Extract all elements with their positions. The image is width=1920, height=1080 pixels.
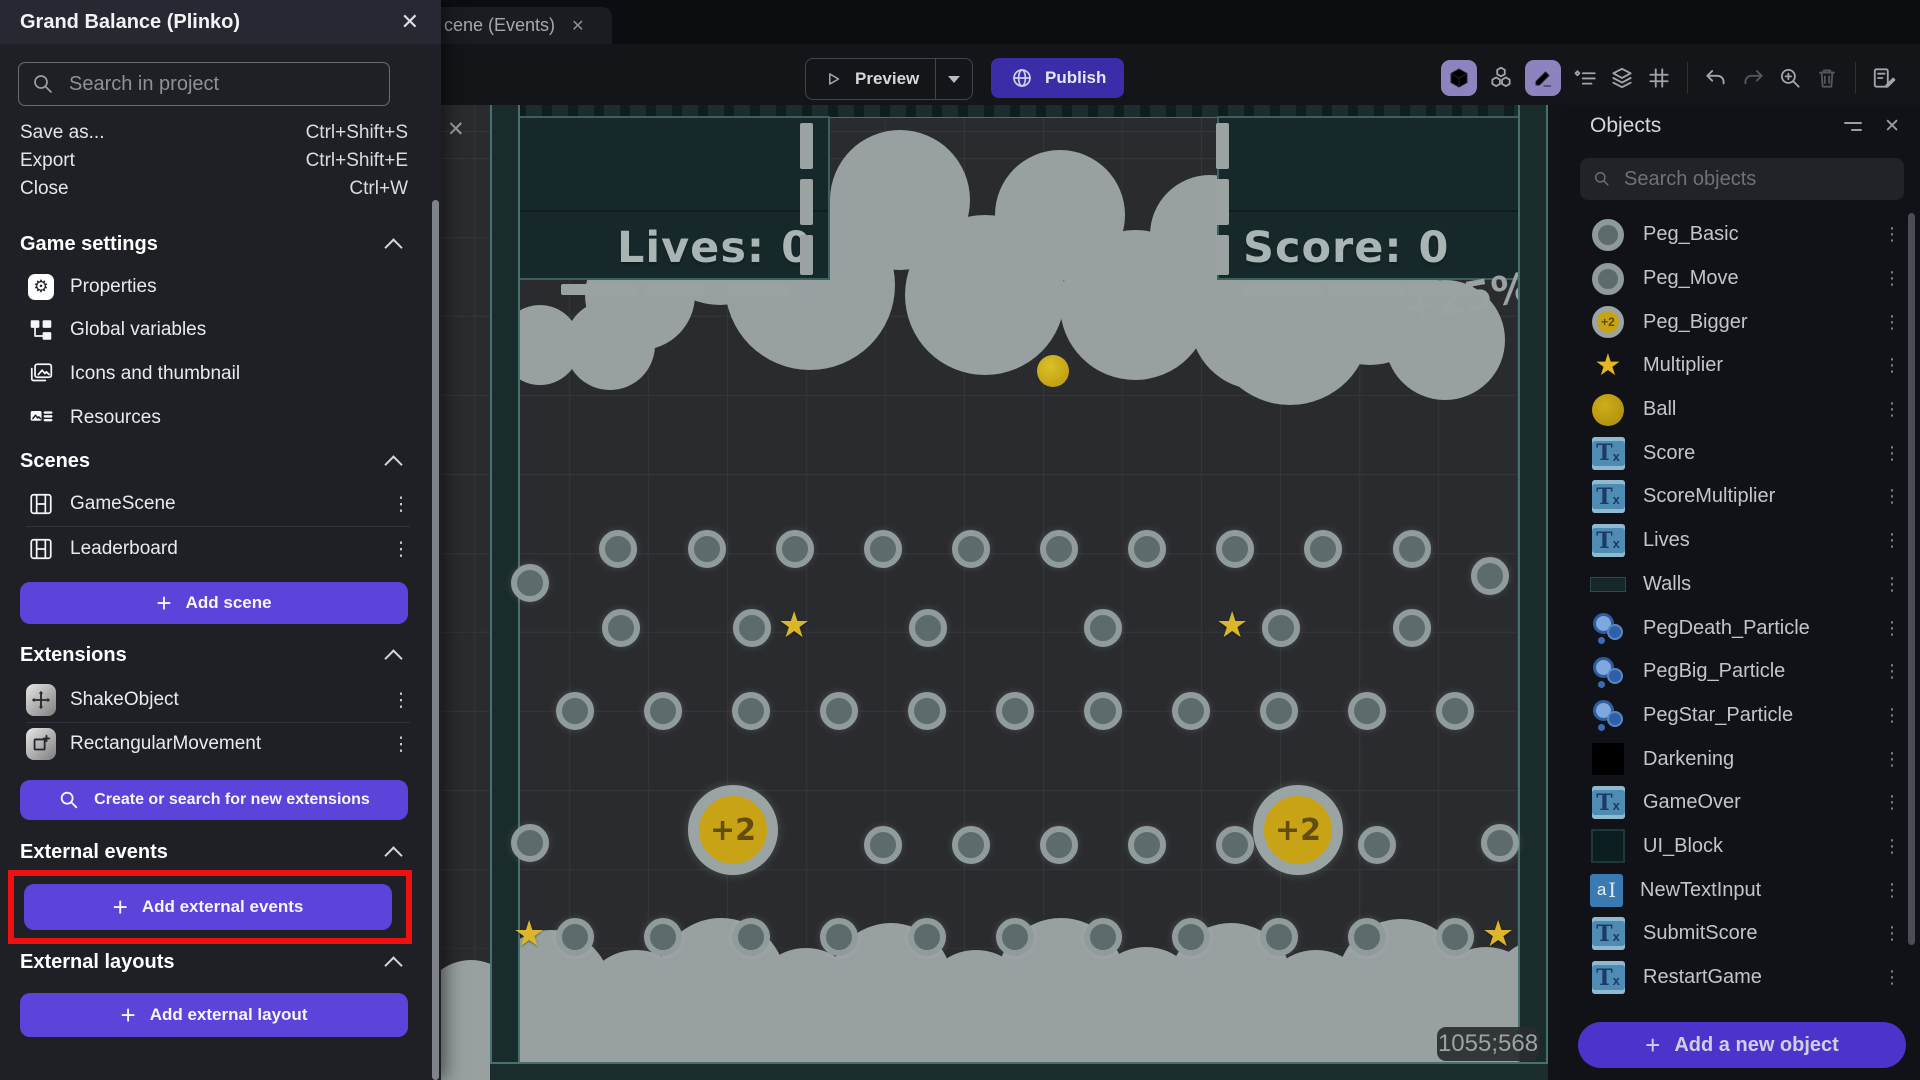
project-title: Grand Balance (Plinko) [20, 11, 401, 34]
particle-icon [1590, 697, 1626, 733]
objects-panel-title: Objects [1590, 114, 1661, 138]
extension-menu-icon[interactable]: ⋮ [391, 689, 411, 712]
peg-instance[interactable] [1393, 609, 1431, 647]
peg-instance[interactable] [1393, 530, 1431, 568]
peg-instance[interactable] [952, 530, 990, 568]
peg-icon [1590, 261, 1626, 297]
section-scenes[interactable]: Scenes [20, 449, 408, 473]
scene-item-gamescene[interactable]: GameScene ⋮ [0, 482, 441, 526]
peg-instance[interactable] [1436, 918, 1474, 956]
scene-canvas[interactable]: Lives: 0 Score: 0 +25% 1055;568 ✕ ★★★★+2… [441, 105, 1563, 1080]
peg-instance[interactable] [644, 692, 682, 730]
section-extensions[interactable]: Extensions [20, 643, 408, 667]
peg-instance[interactable] [1358, 826, 1396, 864]
multiplier-star-instance[interactable]: ★ [513, 917, 545, 953]
coin-label: +2 [710, 813, 756, 848]
objects-panel-close-icon[interactable]: ✕ [1884, 115, 1900, 138]
objects-panel: Objects ✕ Peg_Basic⋮Peg_Move⋮+2Peg_Bigge… [1563, 105, 1920, 1080]
scene-menu-icon[interactable]: ⋮ [391, 493, 411, 516]
dash-segment [800, 179, 813, 225]
text-icon: Tx [1592, 524, 1625, 557]
text-icon: Tx [1592, 786, 1625, 819]
section-external-layouts[interactable]: External layouts [20, 950, 408, 974]
publish-button[interactable]: Publish [991, 58, 1124, 98]
object-menu-icon[interactable]: ⋮ [1882, 792, 1902, 813]
dash-segment [800, 123, 813, 169]
chevron-up-icon [384, 846, 402, 864]
dash-segment [1243, 284, 1323, 295]
search-icon [31, 72, 55, 96]
object-menu-icon[interactable]: ⋮ [1882, 486, 1902, 507]
dash-segment [1216, 179, 1229, 225]
lives-text: Lives: 0 [617, 223, 812, 273]
peg-instance[interactable] [909, 609, 947, 647]
dark-icon [1590, 741, 1626, 777]
redo-icon[interactable] [1740, 65, 1766, 91]
add-scene-button[interactable]: + Add scene [20, 582, 408, 624]
object-item-Peg_Bigger[interactable]: +2Peg_Bigger⋮ [1563, 300, 1912, 344]
item-global-variables[interactable]: Global variables [0, 308, 441, 352]
panel-close-icon[interactable]: ✕ [447, 117, 465, 142]
tab-label: cene (Events) [444, 15, 555, 36]
uiblock-icon [1590, 828, 1626, 864]
peg-instance[interactable] [644, 918, 682, 956]
object-item-GameOver[interactable]: TxGameOver⋮ [1563, 781, 1912, 825]
object-label: PegStar_Particle [1643, 704, 1882, 727]
rectangle-plus-icon [26, 729, 56, 759]
item-resources[interactable]: Resources [0, 396, 441, 440]
peg-icon [1590, 217, 1626, 253]
peg-instance[interactable] [1172, 918, 1210, 956]
peg-instance[interactable] [1216, 530, 1254, 568]
grid-icon[interactable] [1646, 65, 1672, 91]
object-item-Ball[interactable]: Ball⋮ [1563, 388, 1912, 432]
extension-menu-icon[interactable]: ⋮ [391, 733, 411, 756]
peg-instance[interactable] [1348, 692, 1386, 730]
divider [1855, 62, 1856, 94]
object-menu-icon[interactable]: ⋮ [1882, 705, 1902, 726]
extension-item-shakeobject[interactable]: ShakeObject ⋮ [0, 678, 441, 722]
object-item-PegStar_Particle[interactable]: PegStar_Particle⋮ [1563, 694, 1912, 738]
search-icon [1592, 168, 1612, 190]
divider [1687, 62, 1688, 94]
add-new-object-label: Add a new object [1674, 1034, 1838, 1057]
object-menu-icon[interactable]: ⋮ [1882, 618, 1902, 639]
peg-instance[interactable] [1348, 918, 1386, 956]
ball-icon [1590, 392, 1626, 428]
add-new-object-button[interactable]: + Add a new object [1578, 1022, 1906, 1068]
film-icon [26, 534, 56, 564]
move-arrows-icon [26, 685, 56, 715]
scene-item-leaderboard[interactable]: Leaderboard ⋮ [0, 527, 441, 571]
dash-segment [1216, 235, 1229, 275]
peg-instance[interactable] [1128, 826, 1166, 864]
peg-instance[interactable] [602, 609, 640, 647]
extension-item-rectangularmovement[interactable]: RectangularMovement ⋮ [0, 722, 441, 766]
object-menu-icon[interactable]: ⋮ [1882, 224, 1902, 245]
object-label: Multiplier [1643, 354, 1882, 377]
object-label: UI_Block [1643, 835, 1882, 858]
search-extensions-button[interactable]: Create or search for new extensions [20, 780, 408, 820]
object-item-ScoreMultiplier[interactable]: TxScoreMultiplier⋮ [1563, 475, 1912, 519]
preview-dropdown[interactable] [936, 59, 972, 99]
object-label: Ball [1643, 398, 1882, 421]
object-menu-icon[interactable]: ⋮ [1882, 355, 1902, 376]
object-label: Peg_Move [1643, 267, 1882, 290]
instances-list-icon[interactable] [1572, 65, 1598, 91]
peg-instance[interactable] [732, 692, 770, 730]
project-search-input[interactable] [67, 72, 377, 97]
scene-menu-icon[interactable]: ⋮ [391, 538, 411, 561]
undo-icon[interactable] [1703, 65, 1729, 91]
peg-instance[interactable] [1040, 826, 1078, 864]
object-label: Lives [1643, 529, 1882, 552]
object-item-Walls[interactable]: Walls⋮ [1563, 563, 1912, 607]
peg-big-icon: +2 [1590, 304, 1626, 340]
peg-instance[interactable] [599, 530, 637, 568]
peg-instance[interactable] [511, 824, 549, 862]
chevron-up-icon [384, 956, 402, 974]
coin-label: +2 [1275, 813, 1321, 848]
peg-instance[interactable] [556, 692, 594, 730]
resources-icon [26, 403, 56, 433]
edit-icon[interactable] [1525, 60, 1561, 96]
dash-segment [727, 284, 790, 295]
wall-icon [1590, 566, 1626, 602]
item-icons-thumbnail[interactable]: Icons and thumbnail [0, 352, 441, 396]
tab-close-icon[interactable]: ✕ [571, 16, 584, 36]
right-wall [1518, 105, 1548, 1080]
object-label: PegDeath_Particle [1643, 617, 1882, 640]
object-label: NewTextInput [1640, 879, 1882, 902]
object-label: RestartGame [1643, 966, 1882, 989]
peg-instance[interactable] [776, 530, 814, 568]
object-menu-icon[interactable]: ⋮ [1882, 268, 1902, 289]
peg-instance[interactable] [908, 918, 946, 956]
object-item-RestartGame[interactable]: TxRestartGame⋮ [1563, 956, 1912, 1000]
publish-label: Publish [1045, 68, 1106, 88]
plus-icon: + [156, 590, 171, 616]
object-label: Score [1643, 442, 1882, 465]
peg-instance[interactable] [864, 826, 902, 864]
object-label: SubmitScore [1643, 922, 1882, 945]
object-item-Multiplier[interactable]: ★Multiplier⋮ [1563, 344, 1912, 388]
object-item-PegDeath_Particle[interactable]: PegDeath_Particle⋮ [1563, 606, 1912, 650]
variables-tree-icon [26, 315, 56, 345]
item-properties[interactable]: ⚙ Properties [0, 265, 441, 309]
bigger-peg-instance[interactable]: +2 [688, 785, 778, 875]
dash-segment [1216, 123, 1229, 169]
toolbar-icon-group [1441, 56, 1897, 100]
filter-icon[interactable] [1842, 122, 1862, 131]
object-label: Walls [1643, 573, 1882, 596]
menu-export[interactable]: Export Ctrl+Shift+E [20, 148, 408, 174]
project-search[interactable] [18, 62, 390, 106]
objects-scrollbar[interactable] [1908, 213, 1915, 945]
peg-instance[interactable] [1304, 530, 1342, 568]
peg-instance[interactable] [1084, 692, 1122, 730]
shortcut: Ctrl+Shift+E [306, 150, 408, 172]
object-menu-icon[interactable]: ⋮ [1882, 880, 1902, 901]
object-item-Score[interactable]: TxScore⋮ [1563, 431, 1912, 475]
menu-close[interactable]: Close Ctrl+W [20, 176, 408, 202]
peg-instance[interactable] [1040, 530, 1078, 568]
peg-instance[interactable] [820, 692, 858, 730]
trash-icon[interactable] [1814, 65, 1840, 91]
play-icon [820, 66, 846, 92]
bigger-peg-instance[interactable]: +2 [1253, 785, 1343, 875]
plus-icon: + [1645, 1032, 1660, 1058]
text-icon: Tx [1592, 480, 1625, 513]
ball-instance[interactable] [1037, 355, 1069, 387]
object-menu-icon[interactable]: ⋮ [1882, 443, 1902, 464]
object-menu-icon[interactable]: ⋮ [1882, 312, 1902, 333]
film-icon [26, 489, 56, 519]
particle-icon [1590, 654, 1626, 690]
peg-instance[interactable] [820, 918, 858, 956]
dash-segment [1328, 284, 1405, 295]
objects-list: Peg_Basic⋮Peg_Move⋮+2Peg_Bigger⋮★Multipl… [1563, 213, 1912, 999]
peg-instance[interactable] [996, 918, 1034, 956]
objects-search[interactable] [1580, 158, 1904, 200]
object-label: Darkening [1643, 748, 1882, 771]
object-menu-icon[interactable]: ⋮ [1882, 967, 1902, 988]
object-item-UI_Block[interactable]: UI_Block⋮ [1563, 825, 1912, 869]
object-item-Peg_Move[interactable]: Peg_Move⋮ [1563, 257, 1912, 301]
multiplier-star-instance[interactable]: ★ [1216, 608, 1248, 644]
section-game-settings[interactable]: Game settings [20, 232, 408, 256]
text-icon: Tx [1592, 437, 1625, 470]
layers-icon[interactable] [1609, 65, 1635, 91]
object-label: Peg_Bigger [1643, 311, 1882, 334]
multiplier-star-instance[interactable]: ★ [1482, 917, 1514, 953]
object-menu-icon[interactable]: ⋮ [1882, 923, 1902, 944]
object-menu-icon[interactable]: ⋮ [1882, 399, 1902, 420]
plus-icon: + [121, 1002, 136, 1028]
objects-search-input[interactable] [1622, 167, 1892, 192]
peg-instance[interactable] [1260, 918, 1298, 956]
object-item-SubmitScore[interactable]: TxSubmitScore⋮ [1563, 912, 1912, 956]
object-menu-icon[interactable]: ⋮ [1882, 530, 1902, 551]
peg-instance[interactable] [1084, 918, 1122, 956]
object-item-PegBig_Particle[interactable]: PegBig_Particle⋮ [1563, 650, 1912, 694]
object-item-Lives[interactable]: TxLives⋮ [1563, 519, 1912, 563]
menu-save-as[interactable]: Save as... Ctrl+Shift+S [20, 120, 408, 146]
preview-button[interactable]: Preview [805, 58, 973, 100]
peg-instance[interactable] [732, 918, 770, 956]
section-external-events[interactable]: External events [20, 840, 408, 864]
annotation-highlight [8, 870, 412, 944]
shortcut: Ctrl+W [349, 178, 408, 200]
peg-instance[interactable] [556, 918, 594, 956]
text-icon: Tx [1592, 961, 1625, 994]
object-label: PegBig_Particle [1643, 660, 1882, 683]
globe-icon [1009, 65, 1035, 91]
multiplier-star-instance[interactable]: ★ [778, 608, 810, 644]
3d-view-icon[interactable] [1441, 60, 1477, 96]
textinput-icon: aI [1590, 874, 1623, 907]
object-menu-icon[interactable]: ⋮ [1882, 574, 1902, 595]
particle-icon [1590, 610, 1626, 646]
peg-instance[interactable] [1084, 609, 1122, 647]
cursor-coordinates-badge: 1055;568 [1437, 1027, 1539, 1061]
chevron-up-icon [384, 238, 402, 256]
object-item-NewTextInput[interactable]: aINewTextInput⋮ [1563, 868, 1912, 912]
object-label: GameOver [1643, 791, 1882, 814]
drawer-scrollbar[interactable] [432, 200, 439, 1080]
canvas-edge [1548, 105, 1563, 1080]
peg-instance[interactable] [908, 692, 946, 730]
peg-instance[interactable] [1260, 692, 1298, 730]
peg-instance[interactable] [1436, 692, 1474, 730]
image-icon [26, 359, 56, 389]
peg-instance[interactable] [511, 564, 549, 602]
score-text: Score: 0 [1243, 223, 1449, 273]
dash-segment [561, 284, 638, 295]
chevron-up-icon [384, 649, 402, 667]
peg-instance[interactable] [996, 692, 1034, 730]
peg-instance[interactable] [688, 530, 726, 568]
peg-instance[interactable] [1471, 557, 1509, 595]
dash-segment [645, 284, 705, 295]
object-label: Peg_Basic [1643, 223, 1882, 246]
peg-instance[interactable] [864, 530, 902, 568]
dash-segment [800, 235, 813, 275]
drawer-close-icon[interactable]: ✕ [401, 9, 419, 35]
chevron-up-icon [384, 455, 402, 473]
object-menu-icon[interactable]: ⋮ [1882, 749, 1902, 770]
shortcut: Ctrl+Shift+S [306, 122, 408, 144]
3d-objects-icon[interactable] [1488, 65, 1514, 91]
chevron-down-icon [948, 76, 960, 83]
object-menu-icon[interactable]: ⋮ [1882, 836, 1902, 857]
object-item-Darkening[interactable]: Darkening⋮ [1563, 737, 1912, 781]
drawer-header: Grand Balance (Plinko) ✕ [0, 0, 441, 44]
tab-scene-events[interactable]: cene (Events) ✕ [420, 7, 612, 44]
peg-instance[interactable] [1172, 692, 1210, 730]
bottom-wall [490, 1062, 1548, 1080]
peg-instance[interactable] [1262, 609, 1300, 647]
object-item-Peg_Basic[interactable]: Peg_Basic⋮ [1563, 213, 1912, 257]
object-label: ScoreMultiplier [1643, 485, 1882, 508]
peg-instance[interactable] [952, 826, 990, 864]
add-external-layout-button[interactable]: + Add external layout [20, 993, 408, 1037]
peg-instance[interactable] [1481, 824, 1519, 862]
peg-instance[interactable] [733, 609, 771, 647]
text-icon: Tx [1592, 917, 1625, 950]
events-sheet-icon[interactable] [1871, 65, 1897, 91]
object-menu-icon[interactable]: ⋮ [1882, 661, 1902, 682]
peg-instance[interactable] [1128, 530, 1166, 568]
project-manager-drawer: Grand Balance (Plinko) ✕ Save as... Ctrl… [0, 0, 441, 1080]
search-icon [58, 789, 80, 811]
star-icon: ★ [1590, 348, 1626, 384]
peg-instance[interactable] [1216, 826, 1254, 864]
preview-label: Preview [855, 69, 919, 89]
gear-icon: ⚙ [26, 272, 56, 302]
zoom-in-icon[interactable] [1777, 65, 1803, 91]
